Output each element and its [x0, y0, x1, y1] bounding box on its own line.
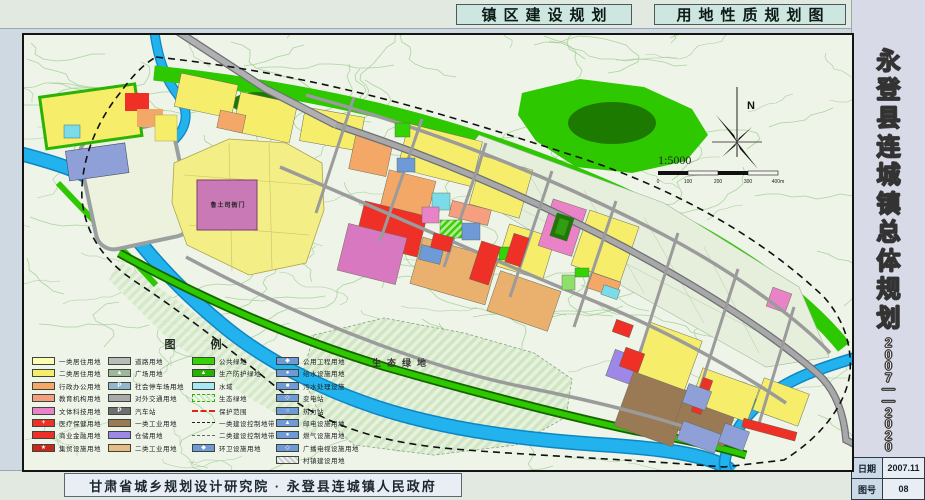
legend-item: 仓储用地	[108, 431, 192, 439]
sheet-title-right: 用地性质规划图	[654, 4, 846, 25]
right-title-strip: 永登县连城镇总体规划 2007——2020 日期 2007.11 图号 08	[851, 0, 925, 500]
legend-title: 图 例	[32, 336, 354, 352]
sheet-title-left-label: 镇区建设规划	[481, 4, 613, 25]
legend-item: 一类工业用地	[108, 419, 192, 427]
sheet-title-right-label: 用地性质规划图	[676, 4, 830, 25]
legend-item: P社会停车场用地	[108, 382, 192, 390]
legend-label: 生态绿地	[219, 393, 247, 403]
legend-label: 医疗保健用地	[59, 418, 101, 428]
svg-text:300: 300	[744, 179, 753, 185]
legend-item: 行政办公用地	[32, 382, 108, 390]
legend-label: 广播电视设施用地	[303, 443, 359, 453]
legend-swatch: ◇	[276, 394, 299, 402]
legend-swatch: P	[108, 382, 131, 390]
legend-label: 二类居住用地	[59, 368, 101, 378]
legend-label: 二类工业用地	[135, 443, 177, 453]
sheet-no-label: 图号	[852, 479, 883, 500]
legend-swatch: ▲	[192, 369, 215, 377]
legend-label: 二类建设控制地带	[219, 430, 275, 440]
legend-label: 给水设施用地	[303, 368, 345, 378]
legend-label: 一类居住用地	[59, 356, 101, 366]
legend-item: 道路用地	[108, 357, 192, 365]
north-label: N	[747, 100, 755, 112]
legend-label: 公用工程用地	[303, 356, 345, 366]
legend-label: 环卫设施用地	[219, 443, 261, 453]
legend-item: ◆环卫设施用地	[192, 444, 276, 452]
plan-sheet: 镇区建设规划 用地性质规划图 永登县连城镇总体规划 2007——2020 日期 …	[0, 0, 925, 500]
legend-swatch	[276, 456, 299, 464]
legend-swatch: ▲	[276, 419, 299, 427]
legend-label: 燃气设施用地	[303, 430, 345, 440]
legend-label: 一类工业用地	[135, 418, 177, 428]
legend-swatch	[108, 431, 131, 439]
legend-item: 教育机构用地	[32, 394, 108, 402]
legend-column-3: 公共绿地▲生产防护绿地水域生态绿地保护范围一类建设控制地带二类建设控制地带◆环卫…	[192, 357, 276, 464]
legend-swatch	[192, 357, 215, 365]
legend-swatch: +	[32, 419, 55, 427]
eco-area-label: 生态绿地	[372, 356, 432, 369]
legend-label: 教育机构用地	[59, 393, 101, 403]
legend-swatch: ◇	[276, 444, 299, 452]
legend-column-2: 道路用地▲广场用地P社会停车场用地对外交通用地P汽车站一类工业用地仓储用地二类工…	[108, 357, 192, 464]
legend-label: 集贸设施用地	[59, 443, 101, 453]
legend-swatch	[192, 410, 215, 412]
heritage-site-label: 鲁土司衙门	[198, 200, 258, 209]
legend-item: +医疗保健用地	[32, 419, 108, 427]
scale-ratio: 1:5000	[658, 153, 691, 167]
legend-item: ★集贸设施用地	[32, 444, 108, 452]
legend-swatch	[192, 422, 215, 423]
legend-swatch	[108, 444, 131, 452]
date-value: 2007.11	[883, 458, 925, 479]
legend-label: 文体科技用地	[59, 406, 101, 416]
date-label: 日期	[852, 458, 883, 479]
legend-swatch: ■	[276, 382, 299, 390]
legend-item: 保护范围	[192, 407, 276, 415]
svg-text:400m: 400m	[772, 179, 785, 185]
legend-label: 对外交通用地	[135, 393, 177, 403]
legend-label: 仓储用地	[135, 430, 163, 440]
legend-label: 行政办公用地	[59, 381, 101, 391]
legend-label: 社会停车场用地	[135, 381, 184, 391]
svg-text:200: 200	[714, 179, 723, 185]
legend-item: ◇广播电视设施用地	[276, 444, 354, 452]
title-block-table: 日期 2007.11 图号 08	[851, 457, 925, 500]
legend-item: ■污水处理设施	[276, 382, 354, 390]
legend-swatch	[108, 357, 131, 365]
legend-item: 二类建设控制地带	[192, 431, 276, 439]
vertical-plan-title: 永登县连城镇总体规划	[852, 48, 925, 333]
legend-item: ◆公用工程用地	[276, 357, 354, 365]
plan-period: 2007——2020	[852, 337, 925, 453]
legend-label: 商业金融用地	[59, 430, 101, 440]
legend-swatch	[32, 407, 55, 415]
legend-item: 对外交通用地	[108, 394, 192, 402]
map-canvas: N 1:5000 0100200300400m 图 例 一类居住用地二类居住用地…	[22, 33, 854, 472]
legend-swatch	[32, 431, 55, 439]
legend-item: 一类居住用地	[32, 357, 108, 365]
legend-column-4: ◆公用工程用地●给水设施用地■污水处理设施◇变电站○热力站▲邮电设施用地●燃气设…	[276, 357, 354, 464]
legend-item: ▲生产防护绿地	[192, 369, 276, 377]
legend-label: 生产防护绿地	[219, 368, 261, 378]
legend-item: ○热力站	[276, 407, 354, 415]
legend-item: ◇变电站	[276, 394, 354, 402]
legend-swatch	[32, 394, 55, 402]
svg-text:0: 0	[657, 179, 660, 185]
legend-swatch	[32, 369, 55, 377]
legend-swatch: P	[108, 407, 131, 415]
legend-swatch	[32, 357, 55, 365]
legend-item: 二类工业用地	[108, 444, 192, 452]
legend-swatch: ◆	[192, 444, 215, 452]
legend-swatch: ●	[276, 431, 299, 439]
legend-item: 二类居住用地	[32, 369, 108, 377]
legend-item: ▲广场用地	[108, 369, 192, 377]
legend-swatch: ◆	[276, 357, 299, 365]
legend-columns: 一类居住用地二类居住用地行政办公用地教育机构用地文体科技用地+医疗保健用地商业金…	[32, 357, 354, 464]
legend-label: 道路用地	[135, 356, 163, 366]
legend-swatch	[192, 394, 215, 402]
legend-item: 公共绿地	[192, 357, 276, 365]
legend-label: 热力站	[303, 406, 324, 416]
legend-swatch: ▲	[108, 369, 131, 377]
legend-label: 汽车站	[135, 406, 156, 416]
legend-label: 广场用地	[135, 368, 163, 378]
legend-item: 文体科技用地	[32, 407, 108, 415]
legend-column-1: 一类居住用地二类居住用地行政办公用地教育机构用地文体科技用地+医疗保健用地商业金…	[32, 357, 108, 464]
legend-swatch	[32, 382, 55, 390]
legend-item: 商业金融用地	[32, 431, 108, 439]
legend-swatch: ●	[276, 369, 299, 377]
legend-swatch	[192, 382, 215, 390]
legend-label: 一类建设控制地带	[219, 418, 275, 428]
legend-swatch	[108, 419, 131, 427]
legend-label: 公共绿地	[219, 356, 247, 366]
legend-label: 水域	[219, 381, 233, 391]
legend-item: ▲邮电设施用地	[276, 419, 354, 427]
legend-label: 变电站	[303, 393, 324, 403]
legend-item: ●燃气设施用地	[276, 431, 354, 439]
legend-label: 污水处理设施	[303, 381, 345, 391]
legend-label: 保护范围	[219, 406, 247, 416]
credit-bar: 甘肃省城乡规划设计研究院 · 永登县连城镇人民政府	[64, 473, 462, 497]
legend-item: ●给水设施用地	[276, 369, 354, 377]
legend-swatch: ★	[32, 444, 55, 452]
legend-item: 生态绿地	[192, 394, 276, 402]
legend-label: 邮电设施用地	[303, 418, 345, 428]
legend-swatch	[108, 394, 131, 402]
legend-swatch: ○	[276, 407, 299, 415]
legend-item: 村镇建设用地	[276, 456, 354, 464]
legend-item: 水域	[192, 382, 276, 390]
legend-swatch	[192, 435, 215, 436]
legend-label: 村镇建设用地	[303, 455, 345, 465]
svg-text:100: 100	[684, 179, 693, 185]
legend-item: 一类建设控制地带	[192, 419, 276, 427]
sheet-no-value: 08	[883, 479, 925, 500]
legend: 图 例 一类居住用地二类居住用地行政办公用地教育机构用地文体科技用地+医疗保健用…	[32, 336, 354, 464]
sheet-title-left: 镇区建设规划	[456, 4, 632, 25]
credit-text: 甘肃省城乡规划设计研究院 · 永登县连城镇人民政府	[89, 476, 437, 495]
legend-item: P汽车站	[108, 407, 192, 415]
